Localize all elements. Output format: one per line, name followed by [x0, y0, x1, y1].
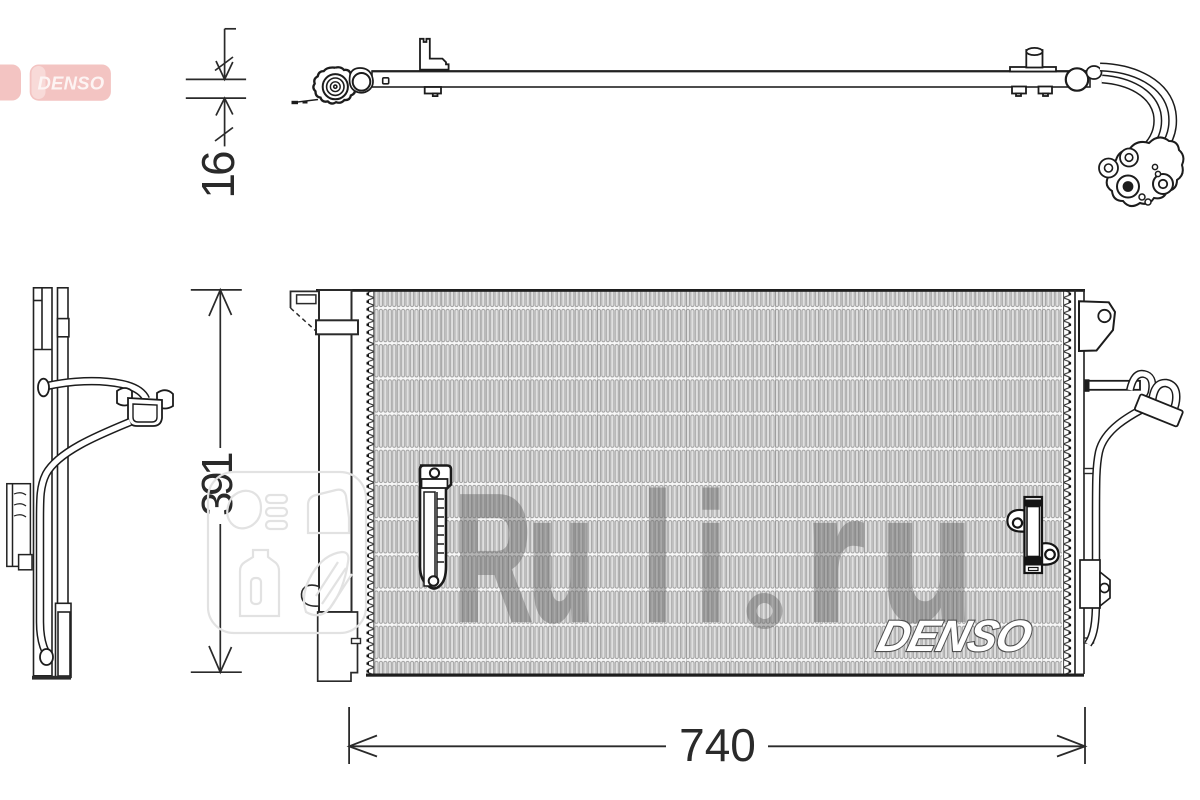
svg-text:i: i	[696, 459, 726, 659]
svg-text:16: 16	[192, 152, 244, 199]
svg-text:R: R	[454, 459, 532, 659]
svg-text:r: r	[805, 458, 865, 658]
svg-text:u: u	[528, 459, 594, 659]
svg-text:DENSO: DENSO	[38, 73, 105, 94]
svg-text:740: 740	[679, 719, 756, 771]
svg-text:DENSO: DENSO	[873, 613, 1037, 661]
svg-text:391: 391	[193, 453, 242, 516]
svg-text:l: l	[643, 459, 673, 659]
